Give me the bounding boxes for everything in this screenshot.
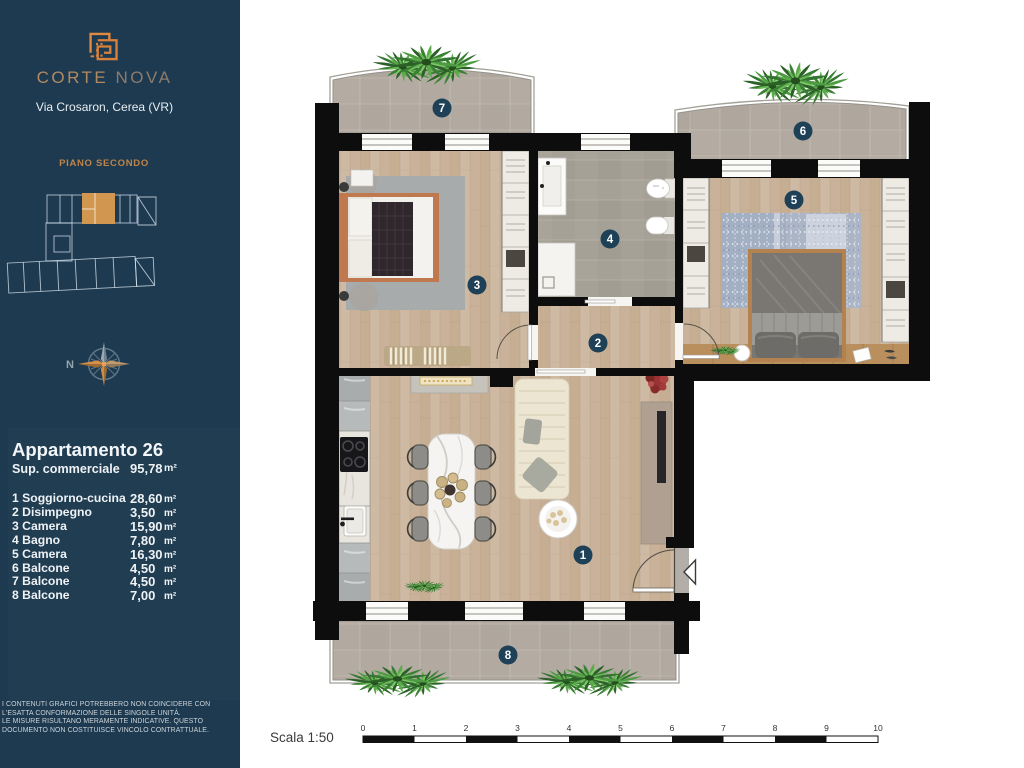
svg-text:3: 3 [515, 723, 520, 733]
svg-text:7: 7 [721, 723, 726, 733]
svg-text:5: 5 [618, 723, 623, 733]
svg-text:1: 1 [580, 550, 587, 562]
svg-text:7: 7 [439, 103, 445, 115]
svg-text:3: 3 [474, 280, 480, 292]
svg-text:4: 4 [607, 234, 614, 246]
svg-text:2: 2 [595, 338, 601, 350]
svg-text:6: 6 [670, 723, 675, 733]
svg-text:8: 8 [773, 723, 778, 733]
svg-text:2: 2 [464, 723, 469, 733]
svg-text:5: 5 [791, 195, 798, 207]
svg-text:4: 4 [567, 723, 572, 733]
svg-text:8: 8 [505, 650, 512, 662]
svg-text:9: 9 [824, 723, 829, 733]
svg-text:10: 10 [873, 723, 883, 733]
svg-text:0: 0 [361, 723, 366, 733]
svg-text:6: 6 [800, 126, 806, 138]
svg-text:Scala 1:50: Scala 1:50 [270, 730, 334, 745]
svg-text:1: 1 [412, 723, 417, 733]
